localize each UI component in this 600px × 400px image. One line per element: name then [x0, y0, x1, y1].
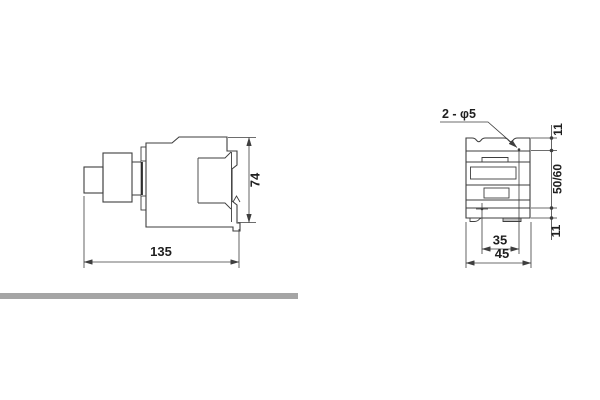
dim-tick-dot: [550, 149, 554, 153]
dim-vertical-stack: 11 50/60 11: [531, 123, 565, 240]
side-view-button-outline: [84, 167, 103, 193]
side-view: 135 74: [84, 137, 263, 268]
side-view-top-clip: [141, 147, 146, 161]
front-view-bottom-tab: [503, 218, 521, 222]
dim-tick-dot: [550, 206, 554, 210]
hole-callout: 2 - φ5: [440, 107, 520, 151]
hole-callout-leader: [440, 122, 517, 148]
dim-45-label: 45: [495, 246, 509, 261]
dim-tick-dot: [550, 216, 554, 220]
dim-top-offset-label: 11: [551, 123, 565, 136]
side-view-body-outline: [146, 137, 240, 231]
front-view-rib-lines: [466, 151, 530, 208]
front-view: 2 - φ5 11 50/60 11 35 45: [440, 107, 565, 268]
dim-overall-height: 74: [228, 138, 263, 223]
din-clip-chevron: [233, 196, 240, 202]
divider-bar: [0, 293, 298, 299]
dim-bottom-offset-label: 11: [549, 224, 563, 237]
dim-135-label: 135: [150, 244, 172, 259]
side-view-front-block-outline: [103, 153, 132, 202]
dim-overall-width: 135: [84, 196, 239, 268]
hole-callout-label: 2 - φ5: [442, 107, 476, 121]
hole-center-dot: [481, 208, 484, 211]
front-view-body-outline: [466, 138, 530, 218]
side-view-pocket-lines: [198, 152, 231, 209]
side-view-connector-lines: [132, 162, 141, 195]
side-view-bottom-clip: [141, 196, 146, 210]
front-view-large-window: [471, 167, 517, 179]
front-view-bump: [482, 158, 508, 163]
dimension-drawing: 135 74 2 - φ5: [0, 0, 600, 400]
dim-vertical-pitch-label: 50/60: [551, 164, 565, 194]
dim-74-label: 74: [248, 172, 263, 187]
front-view-small-window: [484, 188, 509, 198]
